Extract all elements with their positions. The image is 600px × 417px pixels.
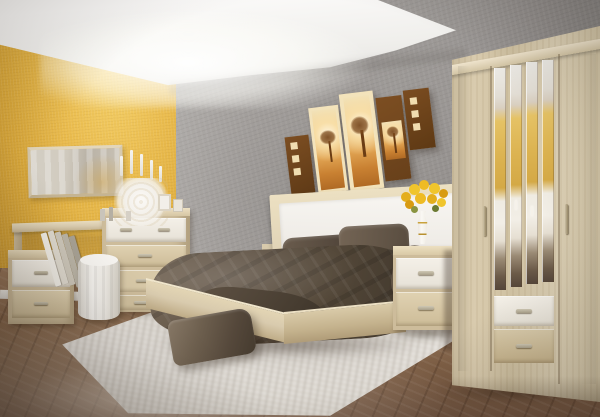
art-tree-canopy <box>319 129 336 145</box>
art-square <box>410 97 418 105</box>
wardrobe-mirrors <box>494 60 554 290</box>
mirror-strip <box>526 62 538 284</box>
perfume-bottle <box>100 209 105 221</box>
leaf <box>411 206 418 213</box>
drawer-handle <box>516 344 532 348</box>
bedroom-scene <box>0 0 600 417</box>
candle <box>140 154 143 176</box>
art-tree-canopy <box>386 125 399 138</box>
wardrobe-drawer-white <box>494 296 554 326</box>
wardrobe <box>452 26 600 402</box>
pouf-top <box>80 254 118 266</box>
mirror-candle-reflection <box>531 206 533 216</box>
mirror-strip <box>494 68 506 290</box>
art-panel-5 <box>403 88 436 151</box>
candle <box>120 156 123 176</box>
drawer-handle <box>158 228 170 231</box>
door-handle <box>483 206 486 236</box>
art-scene <box>381 120 405 160</box>
candle <box>130 150 133 174</box>
candle <box>150 160 153 180</box>
wardrobe-door-left <box>458 66 492 371</box>
mirror-strip <box>510 65 522 287</box>
art-square <box>413 123 421 131</box>
perfume-bottle <box>126 211 131 221</box>
drawer-handle <box>120 228 132 231</box>
leaf <box>432 205 439 212</box>
drawer-handle <box>516 309 532 313</box>
art-square <box>292 155 300 163</box>
wall-mirror <box>27 145 123 198</box>
art-scene <box>343 95 380 187</box>
nightstand-drawer-wood <box>12 290 70 318</box>
art-tree-canopy <box>350 115 370 135</box>
mini-picture-frame <box>173 199 183 212</box>
door-handle <box>565 204 568 234</box>
pouf <box>78 254 120 320</box>
art-square <box>293 168 301 176</box>
flower <box>419 180 429 190</box>
cove-light-glow <box>40 8 370 108</box>
art-tree-trunk <box>360 130 366 157</box>
mini-picture-frame <box>158 194 171 211</box>
art-square <box>290 142 298 150</box>
drawer-handle <box>34 302 48 305</box>
flower <box>427 194 437 204</box>
wardrobe-drawer-wood <box>494 329 554 363</box>
perfume-bottle <box>109 207 113 221</box>
flower <box>439 189 448 198</box>
flower <box>415 193 426 204</box>
drawer-handle <box>418 271 434 275</box>
drawer-handle <box>418 306 434 310</box>
candelabra <box>112 150 170 228</box>
art-scene <box>311 108 345 190</box>
art-square <box>411 110 419 118</box>
drawer-handle <box>138 254 152 257</box>
mirror-strip <box>542 60 554 282</box>
mirror-candle-reflection <box>515 200 517 210</box>
wardrobe-door-right <box>558 54 596 384</box>
yellow-roses <box>399 180 451 218</box>
